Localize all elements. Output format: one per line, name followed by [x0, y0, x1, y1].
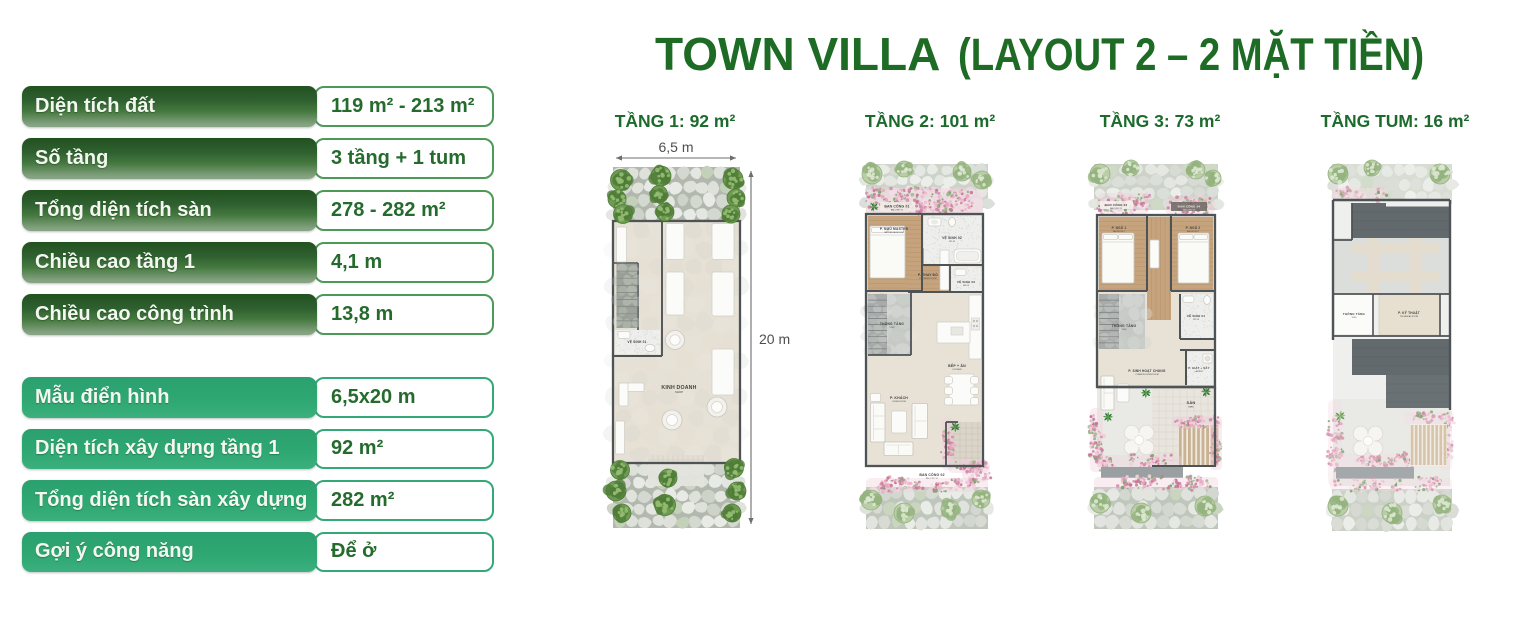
svg-text:P. NGỦ MASTER: P. NGỦ MASTER: [880, 226, 909, 231]
svg-text:WC 04: WC 04: [1193, 319, 1199, 321]
svg-text:YARD: YARD: [1188, 405, 1194, 408]
svg-text:6,5 m: 6,5 m: [658, 140, 693, 155]
svg-text:BEDROOM 1: BEDROOM 1: [1113, 231, 1126, 233]
svg-text:WC 02: WC 02: [949, 241, 956, 243]
svg-text:P. NGỦ 2: P. NGỦ 2: [1186, 225, 1201, 230]
svg-text:COMMON LIVING ROOM: COMMON LIVING ROOM: [1135, 374, 1159, 376]
svg-text:BALCONY 01: BALCONY 01: [891, 209, 904, 212]
svg-text:THÔNG TẦNG: THÔNG TẦNG: [880, 321, 904, 326]
svg-text:MASTER BEDROOM: MASTER BEDROOM: [884, 231, 904, 234]
svg-text:BAN CÔNG 03: BAN CÔNG 03: [1105, 202, 1128, 207]
svg-text:VOID: VOID: [1352, 317, 1357, 319]
svg-text:VOID: VOID: [1122, 329, 1127, 331]
svg-text:SHOP: SHOP: [675, 390, 683, 394]
svg-text:LIVING ROOM: LIVING ROOM: [892, 401, 906, 403]
svg-text:KITCHEN: KITCHEN: [953, 369, 962, 371]
svg-text:LAUNDRY: LAUNDRY: [1195, 370, 1204, 373]
svg-text:BAN CÔNG 04: BAN CÔNG 04: [1178, 204, 1201, 209]
svg-text:BALCONY 03: BALCONY 03: [1110, 207, 1122, 210]
svg-text:BAN CÔNG 01: BAN CÔNG 01: [884, 204, 909, 209]
svg-text:BAN CÔNG 02: BAN CÔNG 02: [919, 472, 944, 477]
svg-text:P. SINH HOẠT CHUNG: P. SINH HOẠT CHUNG: [1128, 369, 1166, 373]
svg-text:P. GIẶT + SẤY: P. GIẶT + SẤY: [1188, 365, 1209, 370]
svg-text:VỆ SINH 03: VỆ SINH 03: [957, 279, 975, 284]
svg-text:THÔNG TẦNG: THÔNG TẦNG: [1343, 311, 1366, 316]
svg-text:VỆ SINH 04: VỆ SINH 04: [1187, 313, 1205, 318]
svg-text:20 m: 20 m: [759, 331, 790, 347]
svg-text:BẾP + ĂN: BẾP + ĂN: [948, 363, 966, 368]
svg-text:TECHNICAL ROOM: TECHNICAL ROOM: [1400, 315, 1418, 318]
svg-text:WC 03: WC 03: [963, 285, 969, 287]
svg-text:VỆ SINH 02: VỆ SINH 02: [942, 235, 962, 240]
svg-text:P. KỸ THUẬT: P. KỸ THUẬT: [1398, 310, 1420, 315]
svg-text:THÔNG TẦNG: THÔNG TẦNG: [1112, 323, 1137, 328]
svg-text:SÂN: SÂN: [1186, 400, 1195, 405]
svg-text:BEDROOM 2: BEDROOM 2: [1187, 231, 1200, 233]
svg-text:VOID: VOID: [890, 327, 895, 329]
svg-text:P. KHÁCH: P. KHÁCH: [890, 395, 908, 400]
svg-text:VỆ SINH 01: VỆ SINH 01: [627, 339, 646, 344]
svg-text:P. NGỦ 1: P. NGỦ 1: [1112, 225, 1127, 230]
svg-text:BALCONY 04: BALCONY 04: [1183, 209, 1195, 212]
